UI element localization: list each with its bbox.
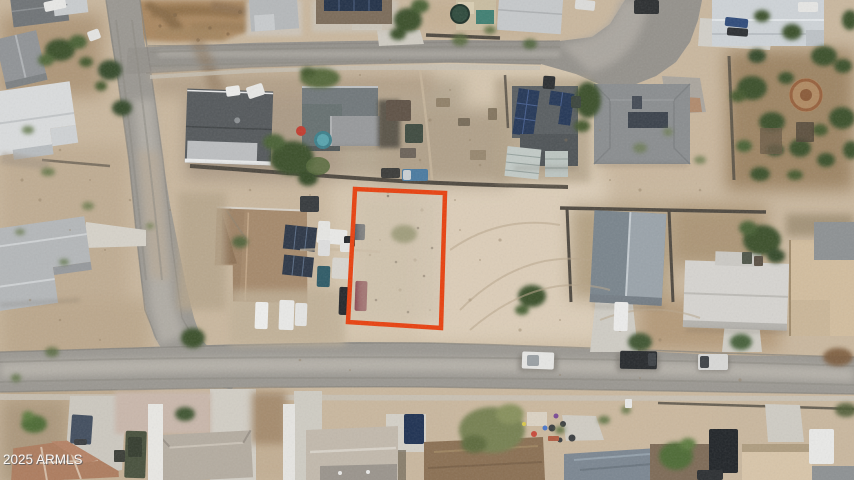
svg-text:2025 ARMLS: 2025 ARMLS [3, 452, 83, 467]
